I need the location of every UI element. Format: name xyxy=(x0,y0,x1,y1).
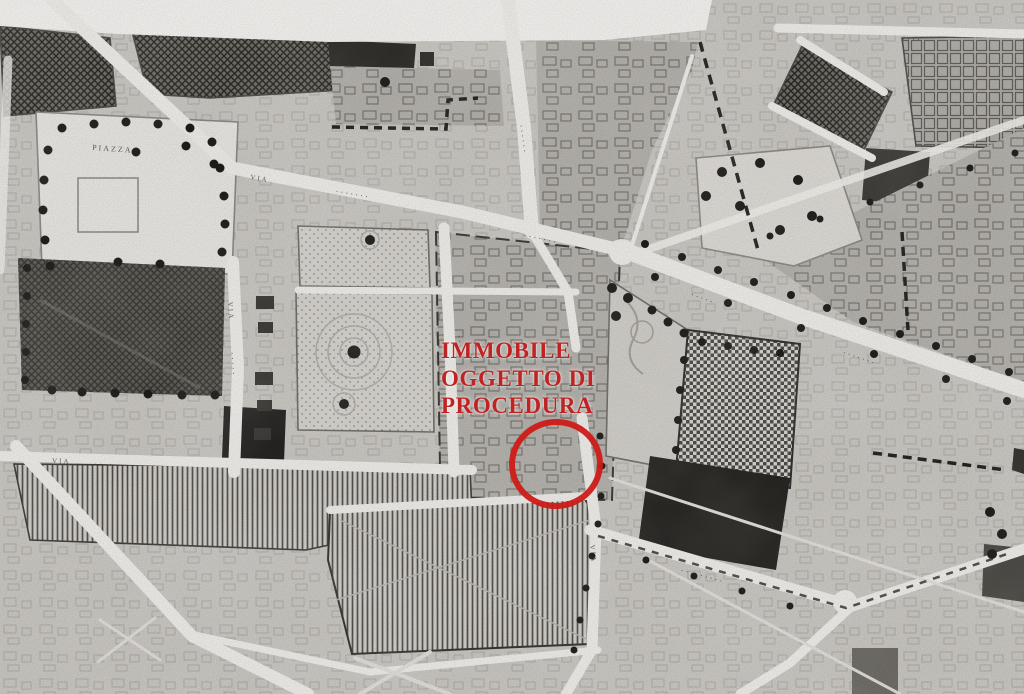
annotation-line-3: PROCEDURA xyxy=(441,392,595,420)
procedure-annotation: IMMOBILE OGGETTO DI PROCEDURA xyxy=(441,337,595,420)
annotation-line-2: OGGETTO DI xyxy=(441,365,595,393)
cadastral-map-image: PIAZZA VIA ······· ······· ······ VIA ··… xyxy=(0,0,1024,694)
annotation-line-1: IMMOBILE xyxy=(441,337,595,365)
